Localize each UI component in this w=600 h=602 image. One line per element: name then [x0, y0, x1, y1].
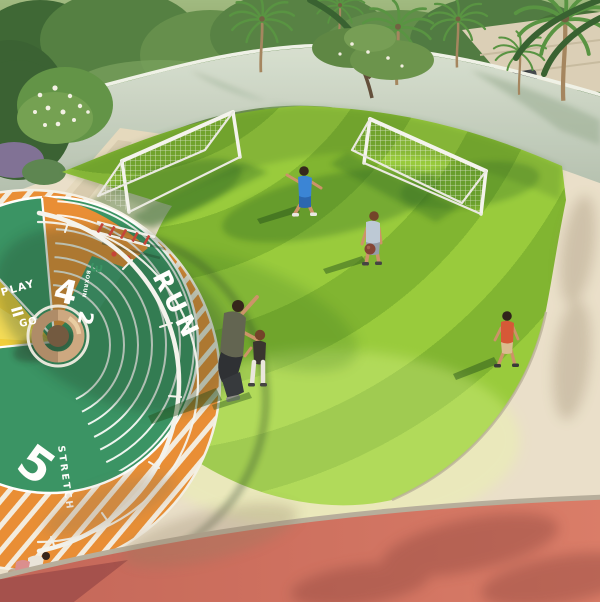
scene-canvas: 4 2 3 BOXRUN 5 RUN PLAY GO STRETCH	[0, 0, 600, 602]
sunlight-wash	[0, 0, 600, 602]
render-scene: 4 2 3 BOXRUN 5 RUN PLAY GO STRETCH	[0, 0, 600, 602]
